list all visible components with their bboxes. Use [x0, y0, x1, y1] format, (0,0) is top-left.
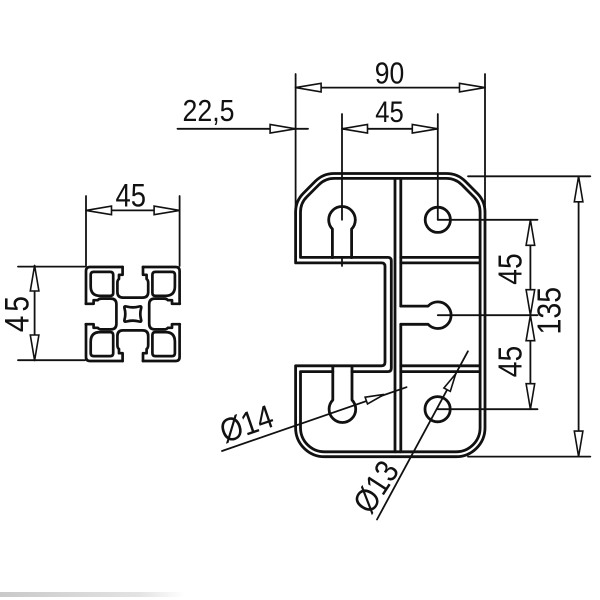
svg-text:45: 45	[492, 253, 529, 285]
svg-text:135: 135	[531, 287, 568, 335]
svg-text:Ø13: Ø13	[346, 454, 406, 519]
svg-text:Ø14: Ø14	[215, 397, 278, 450]
svg-text:4: 4	[0, 316, 37, 333]
svg-text:90: 90	[375, 56, 405, 91]
svg-text:22,5: 22,5	[183, 93, 235, 128]
svg-text:5: 5	[0, 296, 37, 312]
svg-text:45: 45	[492, 346, 529, 378]
svg-text:45: 45	[116, 178, 147, 214]
svg-text:45: 45	[375, 96, 404, 129]
